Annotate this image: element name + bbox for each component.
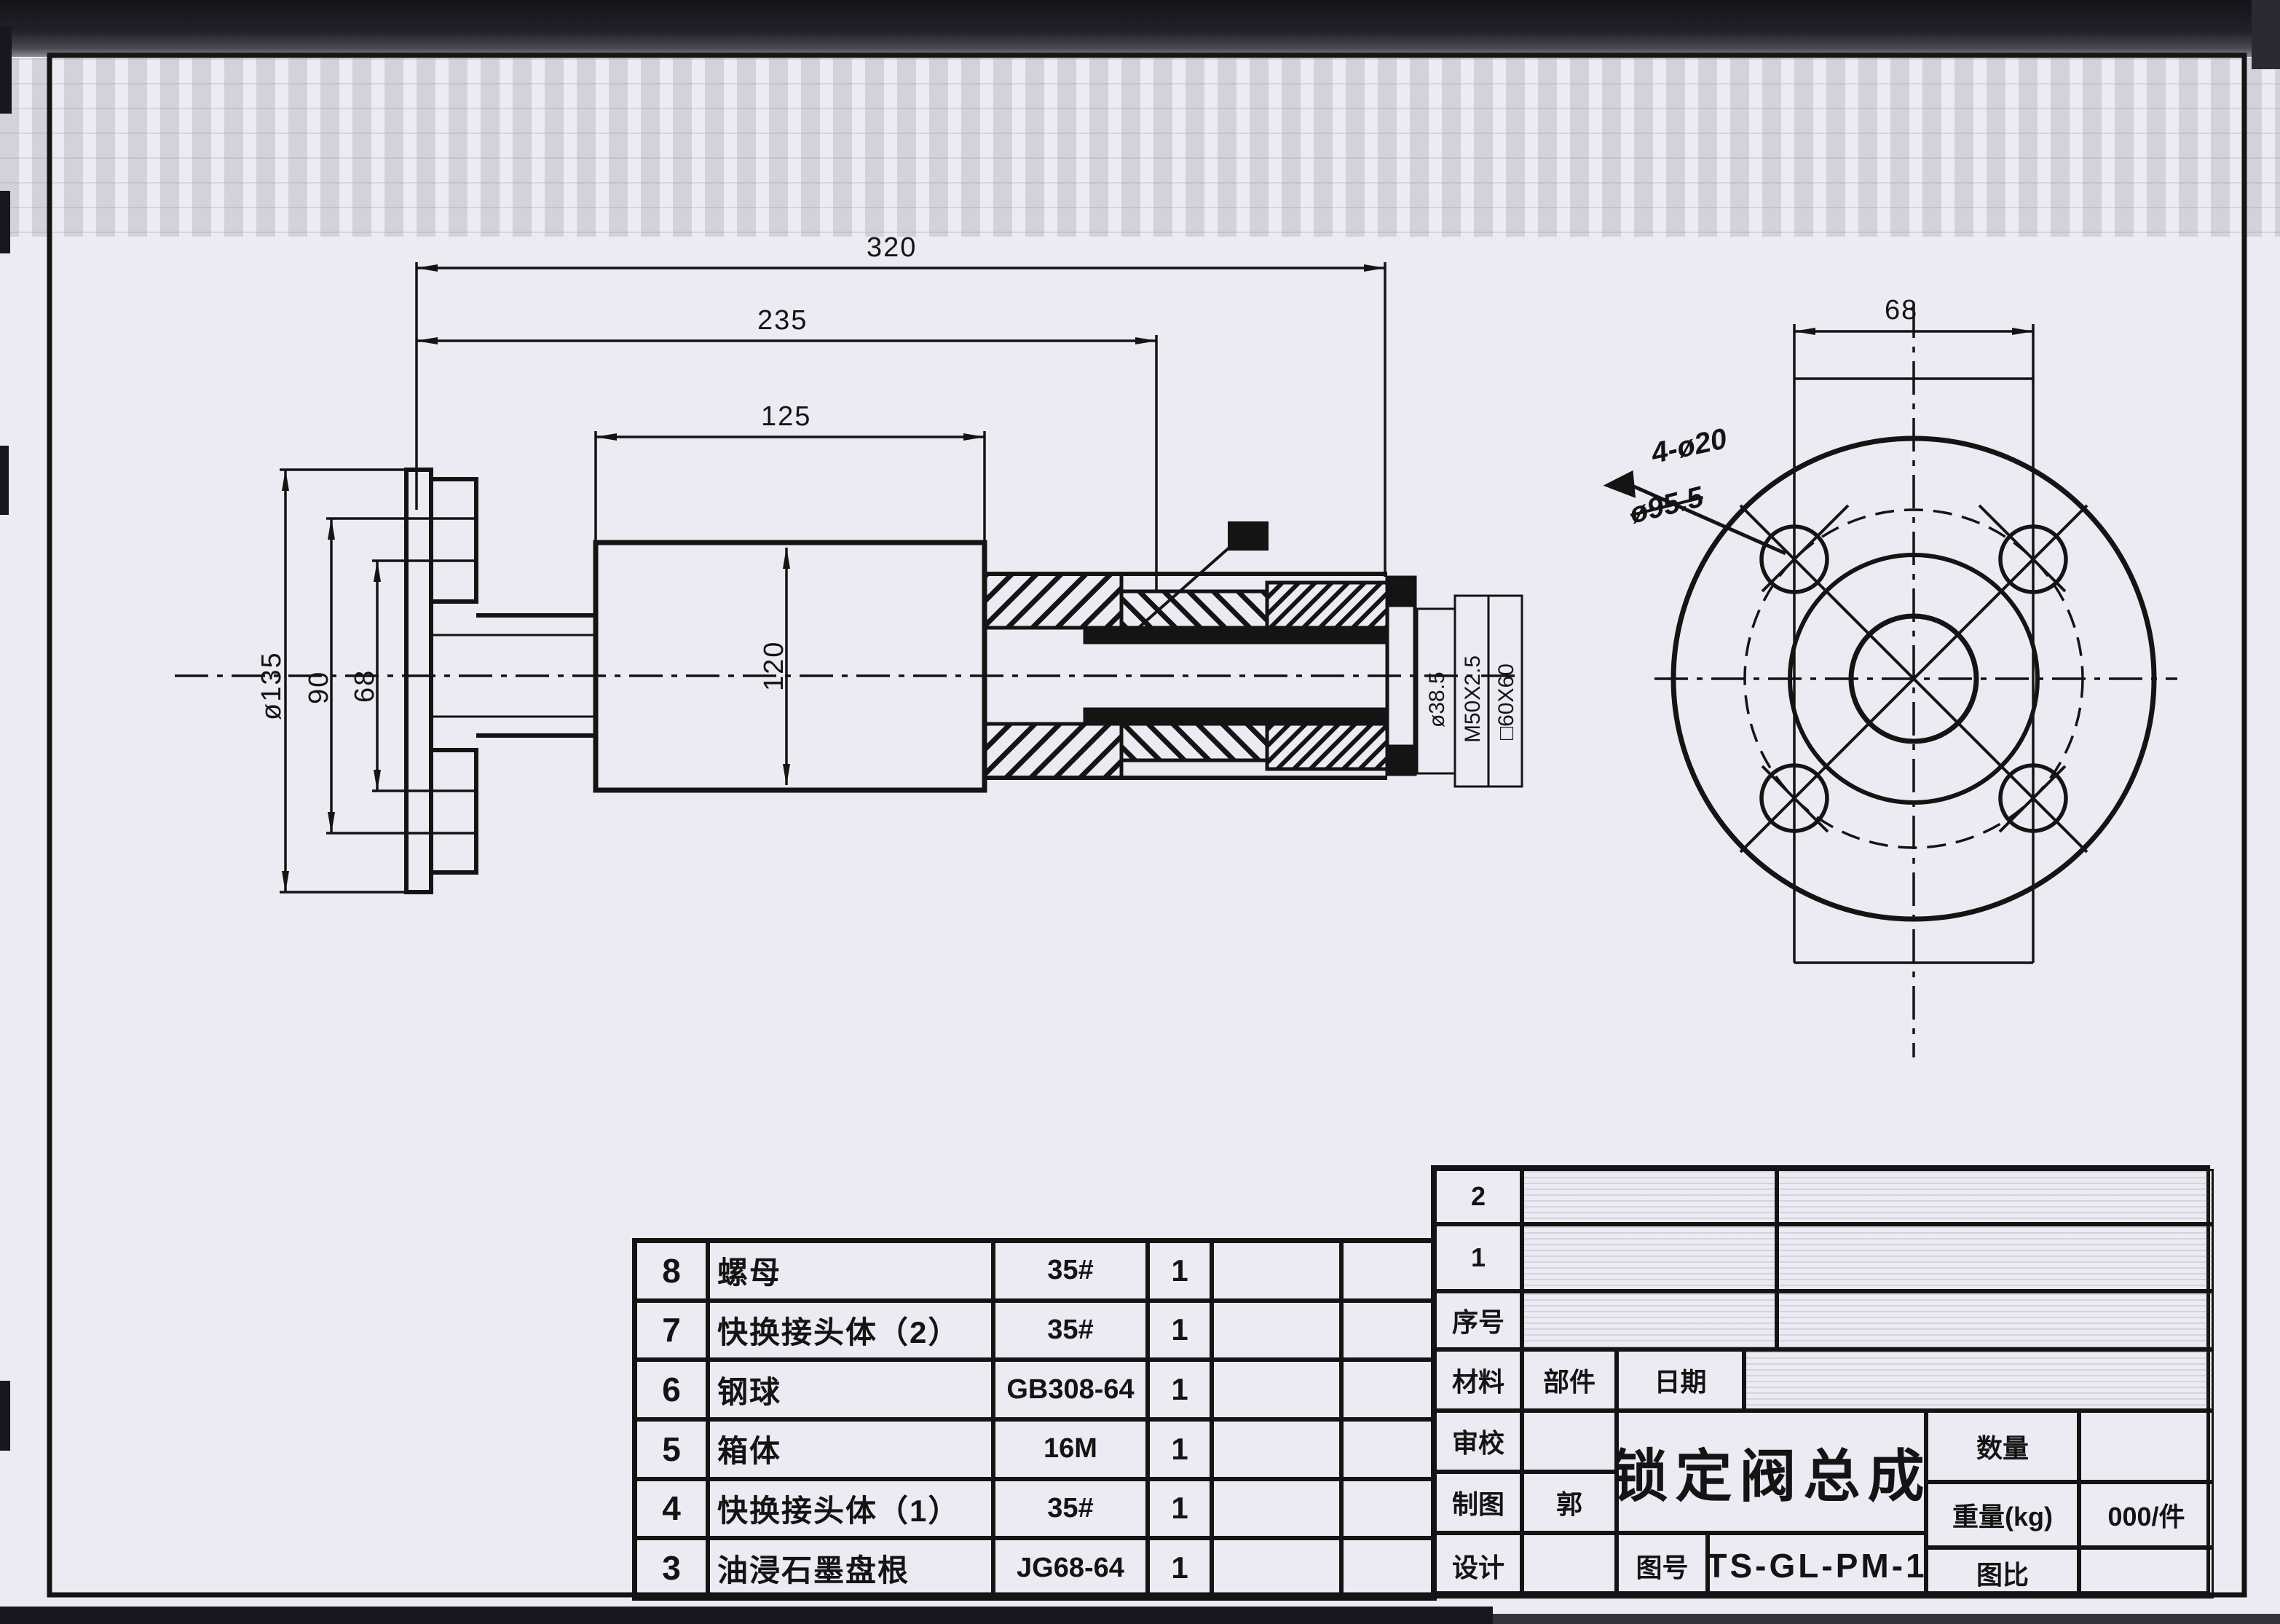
serial-row2-empty-right	[1777, 1169, 2214, 1224]
part-row-empty	[1212, 1360, 1341, 1419]
part-row-empty	[1212, 1419, 1341, 1479]
dim-90-label: 90	[304, 671, 334, 704]
design-value	[1522, 1533, 1617, 1599]
part-row-empty	[1341, 1479, 1434, 1539]
part-row-name: 螺母	[708, 1241, 993, 1301]
front-flange-view: 68 4-ø20 ø95.5	[1607, 295, 2177, 1057]
part-row-spec: JG68-64	[993, 1538, 1148, 1598]
dim-68-side-label: 68	[350, 669, 380, 703]
part-row-empty	[1341, 1301, 1434, 1360]
part-row-no: 6	[635, 1360, 708, 1419]
part-row-spec: 35#	[993, 1479, 1148, 1539]
dim-320-label: 320	[867, 232, 917, 263]
part-row-no: 8	[635, 1241, 708, 1301]
scanned-engineering-drawing: { "side_view": { "dim_320": "320", "dim_…	[0, 0, 2280, 1624]
title-block: 2 1 序号 材料 部件 日期 审校 制图 郭 设计 锁定阀总成 图号 TS-G…	[1431, 1165, 2210, 1595]
dim-120-label: 120	[759, 641, 789, 691]
part-row-empty	[1341, 1360, 1434, 1419]
part-row-no: 3	[635, 1538, 708, 1598]
part-row-empty	[1341, 1241, 1434, 1301]
serial-header: 序号	[1435, 1291, 1522, 1349]
weight-label: 重量(kg)	[1926, 1482, 2079, 1548]
part-row-spec: 35#	[993, 1301, 1148, 1360]
part-row-empty	[1341, 1419, 1434, 1479]
serial-header-empty-right	[1777, 1291, 2214, 1349]
serial-cell-1: 1	[1435, 1224, 1522, 1291]
serial-row1-empty-right	[1777, 1224, 2214, 1291]
side-section-view: M8 320 235 125 120 ø135	[175, 232, 1522, 892]
m8-label: M8	[1234, 531, 1254, 547]
part-row-spec: 35#	[993, 1241, 1148, 1301]
part-row-empty	[1212, 1241, 1341, 1301]
part-row-qty: 1	[1148, 1241, 1212, 1301]
qty-value	[2079, 1411, 2214, 1482]
part-row-no: 5	[635, 1419, 708, 1479]
part-row-empty	[1212, 1479, 1341, 1539]
part-row-empty	[1341, 1538, 1434, 1598]
drawing-no-label: 图号	[1617, 1533, 1708, 1599]
scale-label: 图比	[1926, 1548, 2079, 1599]
review-label: 审校	[1435, 1411, 1522, 1472]
holes-count-note: 4-ø20	[1648, 422, 1729, 470]
serial-cell-2: 2	[1435, 1169, 1522, 1224]
part-row-no: 4	[635, 1479, 708, 1539]
dim-m50-label: M50X2.5	[1461, 655, 1485, 743]
review-value	[1522, 1411, 1617, 1472]
serial-header-empty	[1522, 1291, 1777, 1349]
dim-125-label: 125	[761, 401, 811, 432]
part-label: 部件	[1522, 1349, 1617, 1411]
flange-side-profile	[406, 470, 596, 892]
dim-d135	[280, 470, 408, 892]
part-row-name: 快换接头体（1）	[708, 1479, 993, 1539]
part-row-no: 7	[635, 1301, 708, 1360]
drawing-title: 锁定阀总成	[1617, 1411, 1926, 1533]
date-label: 日期	[1617, 1349, 1744, 1411]
parts-list-table: 8 螺母 35# 1 7 快换接头体（2） 35# 1 6 钢球 GB308-6…	[632, 1238, 1437, 1601]
dim-125	[596, 431, 985, 540]
part-row-spec: 16M	[993, 1419, 1148, 1479]
part-row-qty: 1	[1148, 1479, 1212, 1539]
part-row-empty	[1212, 1538, 1341, 1598]
dim-68-front-label: 68	[1885, 295, 1918, 326]
serial-row1-empty	[1522, 1224, 1777, 1291]
part-row-spec: GB308-64	[993, 1360, 1148, 1419]
scale-value	[2079, 1548, 2214, 1599]
part-row-qty: 1	[1148, 1419, 1212, 1479]
part-row-name: 钢球	[708, 1360, 993, 1419]
part-row-qty: 1	[1148, 1301, 1212, 1360]
part-row-name: 快换接头体（2）	[708, 1301, 993, 1360]
material-label: 材料	[1435, 1349, 1522, 1411]
dim-235-label: 235	[757, 305, 808, 336]
dim-d385-label: ø38.5	[1425, 671, 1449, 728]
valve-body-outline	[596, 543, 985, 790]
dim-d135-label: ø135	[256, 651, 287, 720]
draft-label: 制图	[1435, 1472, 1522, 1533]
serial-row2-empty	[1522, 1169, 1777, 1224]
part-row-qty: 1	[1148, 1360, 1212, 1419]
date-value-empty	[1744, 1349, 2214, 1411]
part-row-empty	[1212, 1301, 1341, 1360]
part-row-name: 油浸石墨盘根	[708, 1538, 993, 1598]
weight-value: 000/件	[2079, 1482, 2214, 1548]
design-label: 设计	[1435, 1533, 1522, 1599]
drawing-no-value: TS-GL-PM-1	[1708, 1533, 1926, 1599]
dim-sq60-label: □60X60	[1494, 663, 1518, 740]
qty-label: 数量	[1926, 1411, 2079, 1482]
part-row-qty: 1	[1148, 1538, 1212, 1598]
draft-value: 郭	[1522, 1472, 1617, 1533]
part-row-name: 箱体	[708, 1419, 993, 1479]
